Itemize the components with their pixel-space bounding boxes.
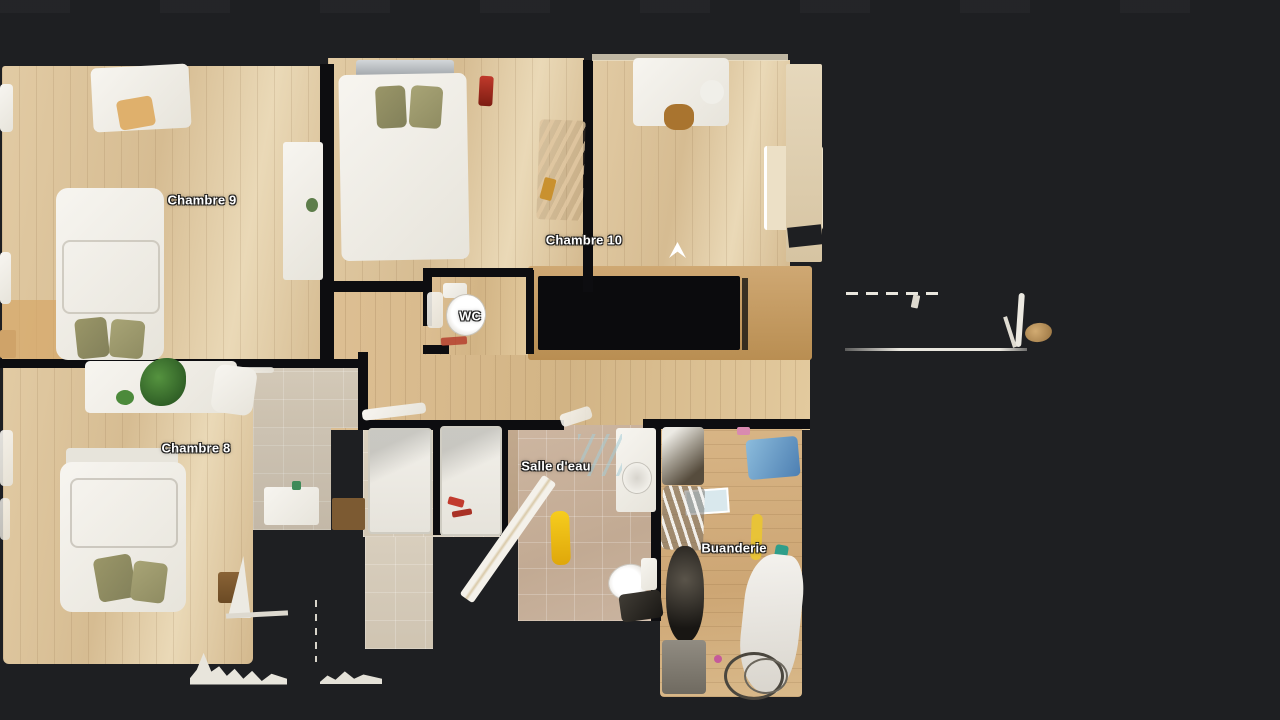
chambre10-right-wall-gap <box>787 224 823 247</box>
dark-clutter-blob <box>666 546 704 642</box>
wc-fixture <box>427 292 443 328</box>
clothes-rack-clutter <box>536 119 585 221</box>
plant-chambre9 <box>306 198 318 212</box>
wall-fragment-left-3 <box>0 330 16 358</box>
chair-chambre10-seat <box>664 104 694 130</box>
stair-frame-seam <box>742 278 748 350</box>
pillow-chambre10-2 <box>409 85 444 129</box>
plant-chambre8-small <box>116 390 134 405</box>
room-label-wc[interactable]: WC <box>459 310 481 323</box>
pink-item <box>737 427 750 435</box>
scan-fragment-tan-blob <box>1024 321 1053 344</box>
desk-chambre9-chair <box>116 95 157 131</box>
top-scan-noise <box>0 0 1280 13</box>
scan-fragment-long-line <box>845 348 1027 351</box>
stair-opening-hole <box>538 276 740 350</box>
scan-fragment-wisp-1 <box>1015 293 1025 347</box>
pillow-chambre8-2 <box>130 560 169 604</box>
wall-fragment-left-1 <box>0 84 13 132</box>
pillow-chambre9-1 <box>74 316 110 359</box>
wall-wc-top <box>425 268 533 277</box>
room-label-buanderie[interactable]: Buanderie <box>701 542 766 555</box>
gray-clutter-bottom <box>662 640 706 694</box>
scan-fragment-dashed-line <box>846 292 940 295</box>
room-label-salle-deau[interactable]: Salle d'eau <box>521 460 591 473</box>
room-label-chambre-10[interactable]: Chambre 10 <box>546 234 622 247</box>
pink-dot <box>714 655 722 663</box>
chair-chambre10-back <box>700 80 724 104</box>
bed-chambre8-duvet-fold <box>70 478 178 548</box>
scan-fragment-drip <box>911 294 921 308</box>
scan-fragment-wisp-2 <box>1003 316 1017 348</box>
scan-fragment-zigzag-2 <box>320 664 382 685</box>
chambre8-left-fragment-1 <box>0 430 13 486</box>
salledeau-dark-clutter <box>618 589 663 623</box>
cabinet-corridor <box>264 487 319 525</box>
drying-rack <box>661 485 705 550</box>
scan-fragment-dashed-vertical <box>315 600 317 662</box>
pillow-chambre10-1 <box>375 85 407 129</box>
wall-wc-right <box>526 270 534 354</box>
room-label-chambre-8[interactable]: Chambre 8 <box>162 442 231 455</box>
shower-stall-1 <box>368 428 432 534</box>
floor-below-showers[interactable] <box>365 537 433 649</box>
yellow-bucket <box>550 511 571 566</box>
wall-fragment-left-2 <box>0 252 11 304</box>
wall-wc-bottom <box>423 345 449 354</box>
buanderie-top-clutter <box>662 427 704 485</box>
floorplan-viewer[interactable]: Chambre 9 Chambre 10 WC Chambre 8 Salle … <box>0 0 1280 720</box>
sink-bowl <box>622 462 652 494</box>
chambre8-left-fragment-2 <box>0 498 10 540</box>
fire-extinguisher <box>478 76 494 107</box>
chair-chambre8 <box>210 363 258 416</box>
wall-bedroom-bottom <box>331 281 431 292</box>
wardrobe-chambre9 <box>283 142 323 280</box>
brown-door-panel <box>332 498 365 530</box>
bike-wheel-inner <box>744 658 788 694</box>
salledeau-toilet-tank <box>641 558 657 590</box>
room-label-chambre-9[interactable]: Chambre 9 <box>168 194 237 207</box>
pillow-chambre9-2 <box>108 319 145 360</box>
shower-stall-2 <box>440 426 502 536</box>
bed-chambre9-duvet-fold <box>62 240 160 314</box>
wall-bedroom-divider <box>583 60 593 292</box>
blue-laundry-bin <box>745 436 800 480</box>
cabinet-green-item <box>292 481 301 490</box>
